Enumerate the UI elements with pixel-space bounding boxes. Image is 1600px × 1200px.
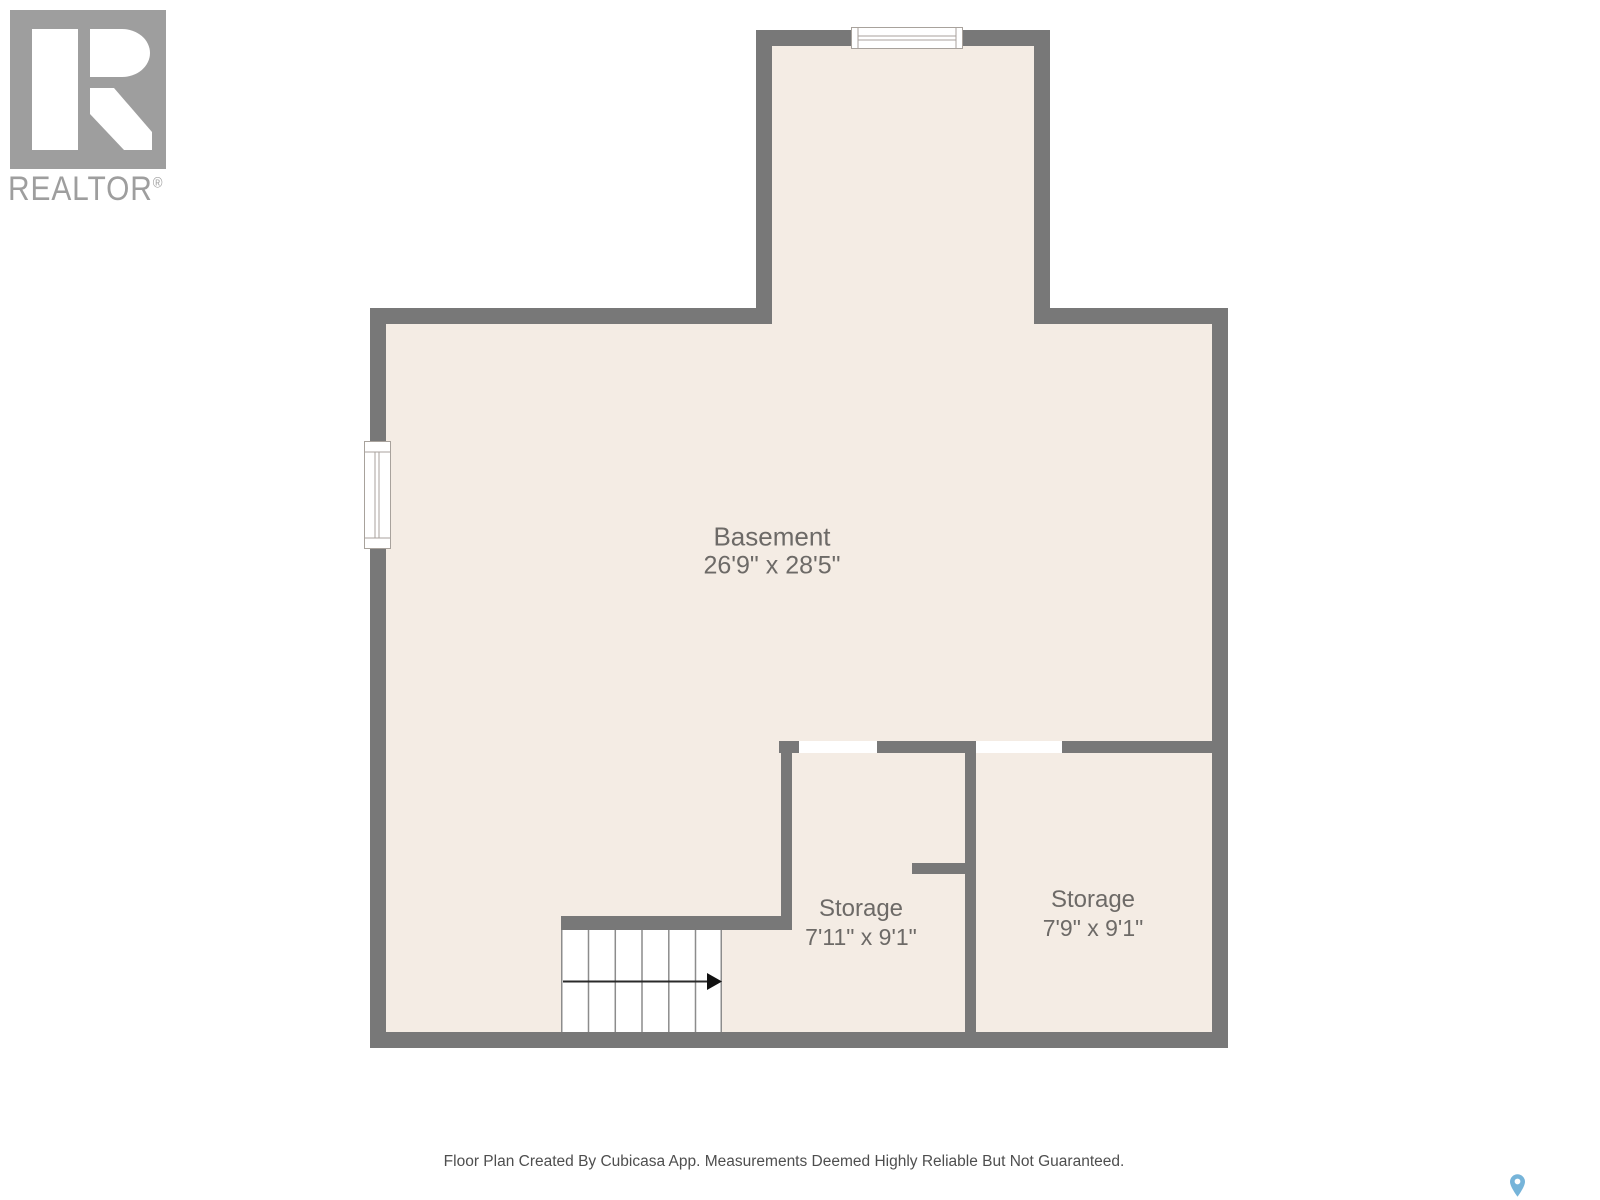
window-top bbox=[851, 27, 963, 49]
wall-left bbox=[370, 308, 386, 1048]
logo-r-bowl bbox=[90, 29, 150, 77]
floor-area-extension bbox=[756, 30, 1050, 324]
room-dimensions: 7'11" x 9'1" bbox=[805, 923, 917, 952]
wall-top-right-segment bbox=[1034, 308, 1228, 324]
floor-plan-page: REALTOR® bbox=[0, 0, 1600, 1200]
wall-storage-divider bbox=[965, 741, 976, 1032]
registered-trademark: ® bbox=[153, 175, 163, 192]
realtor-wordmark: REALTOR bbox=[8, 170, 153, 208]
wall-bottom bbox=[370, 1032, 1228, 1048]
room-label-storage-right: Storage 7'9" x 9'1" bbox=[1043, 885, 1144, 943]
door-opening-storage-left bbox=[799, 741, 877, 753]
realtor-logo-text: REALTOR® bbox=[8, 170, 202, 209]
wall-top-left-segment bbox=[370, 308, 772, 324]
room-dimensions: 26'9" x 28'5" bbox=[703, 552, 840, 581]
door-opening-storage-right bbox=[976, 741, 1062, 753]
room-label-basement: Basement 26'9" x 28'5" bbox=[703, 522, 840, 581]
wall-right bbox=[1212, 308, 1228, 1048]
wall-storage-top-right bbox=[1062, 741, 1212, 753]
wall-stair-header bbox=[561, 916, 791, 930]
room-name: Storage bbox=[805, 894, 917, 923]
disclaimer-text: Floor Plan Created By Cubicasa App. Meas… bbox=[0, 1153, 1568, 1171]
wall-storage-top-middle bbox=[877, 741, 976, 753]
room-label-storage-left: Storage 7'11" x 9'1" bbox=[805, 894, 917, 952]
room-name: Basement bbox=[703, 522, 840, 552]
room-name: Storage bbox=[1043, 885, 1144, 914]
map-pin-icon bbox=[1510, 1174, 1525, 1197]
wall-storage-stub bbox=[912, 863, 965, 874]
wall-extension-right bbox=[1034, 30, 1050, 324]
window-left bbox=[364, 441, 391, 549]
wall-extension-left bbox=[756, 30, 772, 324]
room-dimensions: 7'9" x 9'1" bbox=[1043, 914, 1144, 943]
stairs bbox=[561, 930, 722, 1032]
wall-storage-left bbox=[781, 741, 792, 930]
realtor-logo-icon bbox=[10, 10, 166, 169]
logo-r-stem bbox=[32, 29, 78, 150]
